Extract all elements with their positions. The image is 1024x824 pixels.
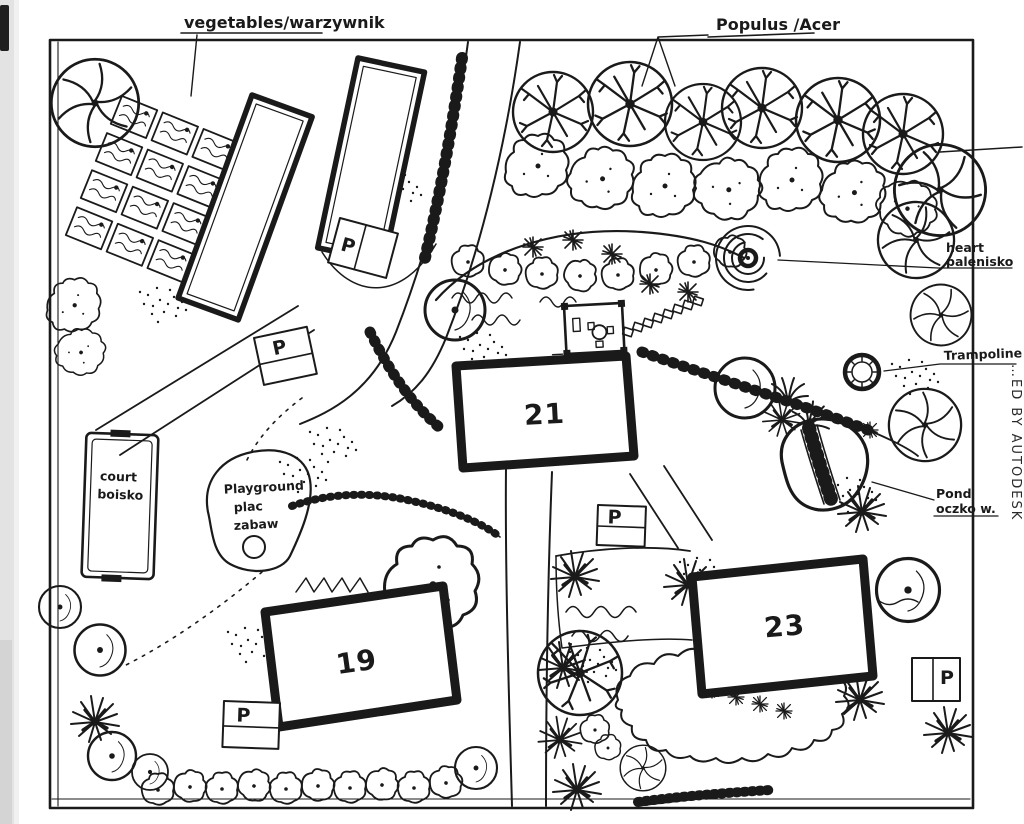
populus-tree-icon bbox=[722, 68, 802, 148]
stepping-stone-icon bbox=[673, 304, 684, 313]
vegetable-bed bbox=[107, 224, 153, 266]
stepping-stone-icon bbox=[683, 300, 694, 309]
bush-icon bbox=[526, 257, 558, 289]
star-plant-icon bbox=[640, 274, 660, 294]
playground-label-pl1: plac bbox=[233, 498, 263, 515]
grass-tuft-icon bbox=[553, 764, 601, 810]
stepping-stone-icon bbox=[633, 322, 644, 331]
parking-marker-2: P bbox=[254, 327, 317, 385]
bush-icon bbox=[558, 253, 603, 298]
populus-acer-label: Populus /Acer bbox=[716, 15, 840, 34]
playground-label-en: Playground bbox=[223, 477, 304, 496]
grass-tuft-icon bbox=[924, 707, 972, 753]
stepping-stone-icon bbox=[663, 309, 674, 318]
building-19: 19 bbox=[265, 586, 457, 727]
autodesk-watermark: …ED BY AUTODESK bbox=[1008, 364, 1023, 521]
cloud-tree-icon bbox=[505, 134, 569, 197]
vegetable-bed bbox=[152, 112, 198, 154]
oczko-label: oczko w. bbox=[936, 501, 996, 516]
bush-icon bbox=[427, 764, 464, 801]
swirl-tree-icon bbox=[874, 374, 976, 476]
building-21-number: 21 bbox=[523, 397, 566, 432]
round-tree-icon bbox=[455, 747, 497, 789]
bush-icon bbox=[636, 250, 675, 289]
round-tree-icon bbox=[75, 625, 126, 676]
bush-icon bbox=[398, 771, 430, 803]
bush-icon bbox=[485, 249, 526, 290]
star-plant-icon bbox=[523, 237, 543, 257]
building-21: 21 bbox=[456, 356, 634, 468]
parking-letter: P bbox=[607, 506, 622, 528]
pond bbox=[781, 419, 867, 510]
swirl-tree-icon bbox=[620, 745, 666, 791]
stepping-stone-icon bbox=[653, 313, 664, 322]
fire-pit bbox=[711, 221, 785, 295]
bush-icon bbox=[678, 245, 710, 277]
pond-label: Pond bbox=[936, 486, 972, 501]
stepping-stone-icon bbox=[643, 318, 654, 327]
vegetable-bed bbox=[122, 187, 168, 229]
bush-icon bbox=[602, 258, 634, 290]
heart-label: heart bbox=[946, 240, 984, 255]
court-label-pl: boisko bbox=[97, 486, 144, 503]
swirl-tree-icon bbox=[51, 59, 138, 146]
star-plant-icon bbox=[752, 696, 768, 712]
grass-tuft-icon bbox=[538, 717, 581, 758]
parking-letter: P bbox=[940, 667, 954, 689]
bush-icon bbox=[334, 771, 366, 803]
populus-tree-icon bbox=[796, 78, 880, 162]
swirl-tree-icon bbox=[904, 278, 978, 352]
grass-tuft-icon bbox=[71, 696, 119, 742]
round-tree-icon bbox=[425, 280, 485, 340]
parking-marker-3: P bbox=[222, 701, 280, 749]
round-tree-icon bbox=[877, 559, 940, 622]
vegetable-bed bbox=[81, 170, 127, 212]
round-tree-icon bbox=[132, 754, 168, 790]
plan-drawing: court boisko Playground plac zabaw bbox=[0, 0, 1024, 824]
populus-tree-icon bbox=[665, 84, 741, 160]
cloud-tree-icon bbox=[47, 278, 101, 332]
parking-letter: P bbox=[236, 704, 251, 726]
scan-edge-artifacts bbox=[0, 0, 19, 824]
star-plant-icon bbox=[678, 282, 698, 302]
star-plant-icon bbox=[776, 703, 792, 719]
round-tree-icon bbox=[715, 358, 775, 418]
site-plan-sketch: court boisko Playground plac zabaw bbox=[0, 0, 1024, 824]
building-19-number: 19 bbox=[334, 643, 379, 681]
building-23: 23 bbox=[692, 559, 873, 694]
sport-court: court boisko bbox=[81, 429, 158, 583]
long-building-west bbox=[178, 95, 312, 320]
palenisko-label: palenisko bbox=[946, 254, 1014, 269]
stepping-stone-icon bbox=[693, 296, 704, 305]
populus-tree-icon bbox=[588, 62, 672, 146]
court-label-en: court bbox=[100, 468, 138, 484]
star-plant-icon bbox=[862, 422, 878, 438]
grass-tuft-icon bbox=[551, 551, 599, 597]
trampoline bbox=[845, 355, 879, 389]
vegetable-bed bbox=[111, 96, 157, 138]
cloud-tree-icon bbox=[632, 154, 696, 217]
round-tree-icon bbox=[88, 732, 136, 780]
cloud-tree-icon bbox=[759, 148, 823, 211]
star-plant-icon bbox=[563, 230, 583, 250]
parking-marker-5: P bbox=[912, 658, 960, 701]
grass-tuft-icon bbox=[838, 486, 886, 532]
playground: Playground plac zabaw bbox=[207, 450, 311, 571]
round-tree-icon bbox=[39, 586, 81, 628]
playground-label-pl2: zabaw bbox=[233, 516, 279, 533]
vegetable-bed bbox=[137, 150, 183, 192]
vegetable-bed bbox=[66, 207, 112, 249]
cloud-tree-icon bbox=[561, 137, 643, 218]
parking-marker-4: P bbox=[597, 505, 646, 547]
stipple-dots bbox=[309, 427, 357, 463]
bush-icon bbox=[170, 766, 211, 807]
building-23-number: 23 bbox=[763, 608, 807, 644]
bush-icon bbox=[580, 715, 609, 743]
vegetables-label: vegetables/warzywnik bbox=[184, 13, 385, 32]
star-plant-icon bbox=[602, 244, 622, 264]
trampoline-label: Trampoline bbox=[944, 345, 1023, 363]
